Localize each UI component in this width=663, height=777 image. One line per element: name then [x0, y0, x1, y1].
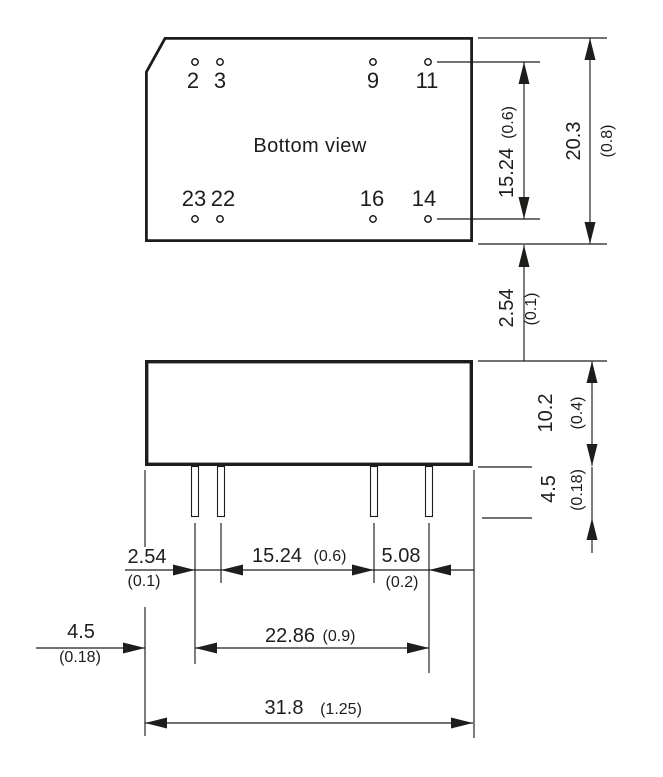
pin-label-9: 9	[367, 70, 379, 92]
pin	[218, 467, 225, 517]
pin-label-14: 14	[412, 188, 436, 210]
pin-hole	[370, 216, 376, 222]
pin-label-2: 2	[187, 70, 199, 92]
pin-hole	[192, 216, 198, 222]
pin-label-16: 16	[360, 188, 384, 210]
dim-edge-mm: 4.5	[67, 622, 95, 642]
dim-pin-length-inch: (0.18)	[570, 469, 586, 511]
dim-pitch-inch: (0.1)	[128, 574, 161, 590]
dim-depth-inch: (0.8)	[600, 125, 616, 158]
dim-pin-span-mm: 22.86	[265, 626, 315, 646]
dim-pin-rows-mm: 15.24	[496, 148, 518, 198]
dim-line-depth	[585, 38, 596, 244]
mechanical-drawing: 2 3 9 11 23 22 16 14 Bottom view 15.24(0…	[0, 0, 663, 777]
dim-width-inch: (1.25)	[320, 702, 362, 718]
arrowhead	[587, 361, 598, 383]
view-label: Bottom view	[253, 136, 366, 156]
dim-pitch-mm: 2.54	[128, 547, 167, 567]
dim-row-width	[145, 718, 473, 729]
arrowhead	[173, 565, 195, 576]
arrowhead	[407, 643, 429, 654]
pin-hole	[425, 59, 431, 65]
arrowhead	[123, 643, 145, 654]
dim-span-mid-mm: 15.24	[252, 546, 302, 566]
dim-gap-right-inch: (0.2)	[386, 575, 419, 591]
dim-line-height	[587, 361, 598, 466]
dim-depth-mm: 20.3	[564, 122, 584, 161]
dim-pin-rows-inch: (0.6)	[500, 106, 517, 139]
side-view-outline	[147, 362, 472, 465]
dim-gap-right-mm: 5.08	[382, 546, 421, 566]
pin-label-22: 22	[211, 188, 235, 210]
pin-hole	[370, 59, 376, 65]
pin-label-11: 11	[416, 70, 439, 92]
arrowhead	[585, 222, 596, 244]
pin-hole	[192, 59, 198, 65]
arrowhead	[585, 38, 596, 60]
dim-edge-inch: (0.18)	[59, 650, 101, 666]
arrowhead	[429, 565, 451, 576]
arrowhead	[352, 565, 374, 576]
arrowhead	[221, 565, 243, 576]
dim-height-mm: 10.2	[536, 394, 556, 433]
dim-pin-length-mm: 4.5	[539, 475, 559, 503]
pin	[426, 467, 433, 517]
dim-row-edge-inch: (0.1)	[524, 293, 540, 326]
dim-pin-span-inch: (0.9)	[323, 629, 356, 645]
dim-pin-rows: 15.24(0.6)	[497, 106, 517, 198]
arrowhead	[519, 62, 530, 84]
dim-row-edge-mm: 2.54	[497, 289, 517, 328]
arrowhead	[587, 444, 598, 466]
dim-line-pin-rows	[519, 62, 530, 219]
arrowhead	[451, 718, 473, 729]
pin-hole	[217, 216, 223, 222]
arrowhead	[195, 643, 217, 654]
dim-span-mid-inch: (0.6)	[314, 549, 347, 565]
pin-hole	[217, 59, 223, 65]
arrowhead	[519, 197, 530, 219]
pin-label-23: 23	[182, 188, 206, 210]
arrowhead	[519, 245, 530, 267]
dim-width-mm: 31.8	[265, 698, 304, 718]
pin-hole	[425, 216, 431, 222]
pin	[192, 467, 199, 517]
pin	[371, 467, 378, 517]
pin-label-3: 3	[214, 70, 226, 92]
dim-height-inch: (0.4)	[570, 397, 586, 430]
arrowhead	[587, 518, 598, 540]
dim-line-pin-length	[587, 467, 598, 553]
arrowhead	[145, 718, 167, 729]
